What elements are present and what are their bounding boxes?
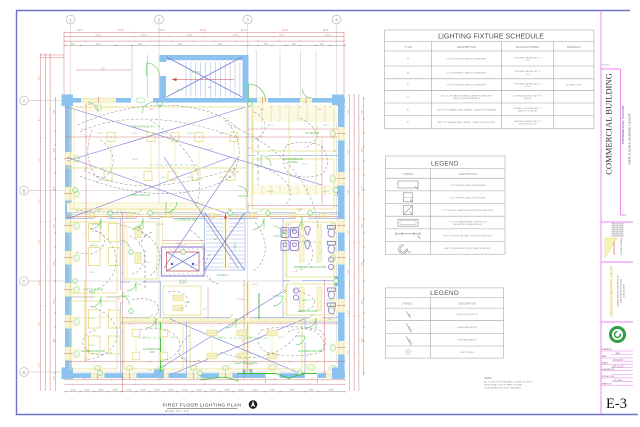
svg-text:5'-4": 5'-4" bbox=[292, 43, 296, 45]
svg-text:REMARKS: REMARKS bbox=[567, 45, 581, 49]
svg-text:GT8 E: GT8 E bbox=[525, 86, 531, 88]
svg-text:5'-4": 5'-4" bbox=[96, 43, 100, 45]
svg-text:2'-2": 2'-2" bbox=[328, 319, 332, 321]
svg-text:5'-2": 5'-2" bbox=[53, 148, 55, 152]
svg-text:LP 1-1: LP 1-1 bbox=[207, 149, 214, 151]
svg-text:LP-C: LP-C bbox=[110, 217, 115, 219]
svg-text:5'-10": 5'-10" bbox=[182, 390, 187, 392]
svg-text:100 BLACKSMITH ROAD SUITE 200: 100 BLACKSMITH ROAD SUITE 200 bbox=[617, 275, 620, 307]
svg-text:DATE:: DATE: bbox=[602, 355, 608, 358]
svg-text:12'-4": 12'-4" bbox=[241, 30, 247, 32]
svg-text:8'-6": 8'-6" bbox=[38, 363, 40, 368]
svg-text:ROOM: ROOM bbox=[289, 160, 299, 164]
svg-text:5'-10": 5'-10" bbox=[196, 390, 201, 392]
svg-text:4: 4 bbox=[335, 17, 338, 22]
svg-text:STAIR-2: STAIR-2 bbox=[217, 273, 228, 277]
svg-text:5'-4": 5'-4" bbox=[138, 43, 142, 45]
svg-text:20'-0": 20'-0" bbox=[187, 35, 193, 37]
svg-text:ESCENT W/ CONVERSION UNIT: ESCENT W/ CONVERSION UNIT bbox=[453, 224, 482, 226]
svg-text:12'-4": 12'-4" bbox=[200, 30, 206, 32]
svg-text:2 X 4' TROFFER 4-LAMP FLUORESC: 2 X 4' TROFFER 4-LAMP FLUORESCENT bbox=[447, 58, 487, 61]
svg-text:6'-4": 6'-4" bbox=[138, 284, 143, 286]
svg-text:20'-0": 20'-0" bbox=[233, 35, 239, 37]
svg-text:LP-C: LP-C bbox=[240, 217, 245, 219]
svg-text:EX-1: EX-1 bbox=[150, 109, 154, 111]
svg-text:5'-6": 5'-6" bbox=[362, 262, 364, 266]
svg-text:12'-4": 12'-4" bbox=[118, 30, 124, 32]
svg-text:20'-0": 20'-0" bbox=[325, 35, 331, 37]
svg-text:DESIGN ENGINEERING GROUP: DESIGN ENGINEERING GROUP bbox=[609, 265, 613, 317]
svg-text:LP-2-7: LP-2-7 bbox=[326, 241, 331, 243]
svg-text:TAND CONVERSION UNIT 8: TAND CONVERSION UNIT 8 bbox=[453, 97, 481, 100]
svg-text:5'-4": 5'-4" bbox=[71, 43, 75, 45]
svg-text:FOUR WAY SWITCH: FOUR WAY SWITCH bbox=[458, 339, 478, 342]
svg-text:ST-1: ST-1 bbox=[208, 87, 213, 89]
svg-text:LEGEND: LEGEND bbox=[430, 290, 459, 297]
svg-text:CLASSROOM 108: CLASSROOM 108 bbox=[298, 349, 322, 353]
svg-text:LP 1-4: LP 1-4 bbox=[157, 224, 164, 226]
svg-text:12'-4": 12'-4" bbox=[77, 30, 83, 32]
svg-text:COMMERCIAL BUILDING: COMMERCIAL BUILDING bbox=[604, 73, 614, 175]
svg-text:STAIR-1: STAIR-1 bbox=[234, 241, 237, 250]
svg-text:SINGLE POLE SWITCH: SINGLE POLE SWITCH bbox=[456, 314, 478, 316]
svg-text:4 FT. 2' HO HANGING WAY 4 LAMP: 4 FT. 2' HO HANGING WAY 4 LAMP FLUOR bbox=[449, 220, 487, 223]
svg-text:LP-2-1: LP-2-1 bbox=[267, 125, 272, 127]
svg-text:DESCRIPTION: DESCRIPTION bbox=[458, 301, 476, 305]
svg-text:(508) 366-0000: (508) 366-0000 bbox=[624, 285, 626, 298]
svg-text:PROJECT NO:: PROJECT NO: bbox=[602, 376, 615, 378]
svg-text:OPEN OFFICE LP-1: OPEN OFFICE LP-1 bbox=[131, 125, 155, 129]
svg-text:12'-4": 12'-4" bbox=[323, 30, 329, 32]
svg-text:BEST 1/2" SHADED WALL VALNET 1: BEST 1/2" SHADED WALL VALNET 1-LAMP FLUO… bbox=[438, 121, 496, 124]
svg-text:R1: R1 bbox=[73, 217, 75, 219]
svg-text:3: 3 bbox=[246, 17, 249, 22]
svg-text:4 FT. 2 L-HO' HANG ING WAY 4-L: 4 FT. 2 L-HO' HANG ING WAY 4-LAMP FLUORE… bbox=[440, 94, 493, 97]
svg-text:5'-2": 5'-2" bbox=[53, 110, 55, 114]
svg-text:AUTODESK: AUTODESK bbox=[613, 241, 616, 255]
svg-text:THREE WAY SWITCH: THREE WAY SWITCH bbox=[457, 326, 478, 329]
svg-text:LP-2-11: LP-2-11 bbox=[184, 302, 190, 304]
svg-text:3'-8": 3'-8" bbox=[203, 309, 207, 311]
svg-text:LP-1-6: LP-1-6 bbox=[219, 177, 224, 179]
svg-text:LP-1-9: LP-1-9 bbox=[177, 90, 184, 92]
svg-text:2 X 4' TROFFER 4-LAMP FLUORESC: 2 X 4' TROFFER 4-LAMP FLUORESCENT bbox=[450, 184, 487, 187]
svg-text:WOMEN'S REST ROOM: WOMEN'S REST ROOM bbox=[294, 265, 327, 269]
svg-text:STUDENT VERSION: STUDENT VERSION bbox=[621, 237, 623, 255]
svg-text:8'-6": 8'-6" bbox=[38, 281, 40, 286]
svg-text:12'-4": 12'-4" bbox=[282, 30, 288, 32]
svg-text:5'-10": 5'-10" bbox=[210, 390, 215, 392]
svg-text:LP-3-5: LP-3-5 bbox=[218, 337, 223, 339]
svg-text:LP-C: LP-C bbox=[160, 217, 165, 219]
svg-text:5'-10": 5'-10" bbox=[140, 390, 145, 392]
svg-text:20'-0": 20'-0" bbox=[279, 35, 285, 37]
svg-text:6'-0": 6'-0" bbox=[116, 299, 120, 301]
svg-text:5'-10": 5'-10" bbox=[328, 390, 333, 392]
svg-text:W/ NIGHT LIGHT: W/ NIGHT LIGHT bbox=[566, 85, 582, 87]
svg-text:2 X 4' TROFFER 4-LAMP FLUORESC: 2 X 4' TROFFER 4-LAMP FLUORESCENT bbox=[447, 84, 487, 87]
svg-text:1/4" = 1'-0": 1/4" = 1'-0" bbox=[612, 365, 624, 368]
svg-text:LIANTOS 12 CW RKT: LIANTOS 12 CW RKT bbox=[518, 110, 539, 113]
svg-text:BWT: BWT bbox=[616, 353, 621, 355]
svg-text:9'-0": 9'-0" bbox=[347, 190, 349, 195]
svg-text:5'-10": 5'-10" bbox=[224, 390, 229, 392]
svg-text:9'-0": 9'-0" bbox=[347, 150, 349, 155]
svg-text:BEST 1/2" EMERGENCY LIGHT 1-LA: BEST 1/2" EMERGENCY LIGHT 1-LAMP W/ BATT… bbox=[444, 247, 491, 250]
svg-text:12'-4": 12'-4" bbox=[159, 30, 165, 32]
svg-text:INGLE PRG 12 2 W: INGLE PRG 12 2 W bbox=[519, 123, 537, 125]
svg-text:LP-2-9: LP-2-9 bbox=[302, 300, 307, 302]
svg-text:12'-0": 12'-0" bbox=[180, 245, 186, 247]
svg-text:E-3: E-3 bbox=[606, 396, 627, 412]
svg-text:JUNCTION BOX: JUNCTION BOX bbox=[460, 352, 476, 354]
svg-text:LP-1-1: LP-1-1 bbox=[132, 133, 137, 135]
svg-text:LP-1-2: LP-1-2 bbox=[132, 177, 137, 179]
svg-text:ELEV: ELEV bbox=[179, 281, 186, 285]
svg-text:5'-10": 5'-10" bbox=[126, 390, 131, 392]
svg-text:LP-3-1: LP-3-1 bbox=[89, 318, 94, 320]
svg-text:LIGHTING FIXTURE SCHEDULE: LIGHTING FIXTURE SCHEDULE bbox=[438, 34, 544, 41]
svg-text:LP-2-3: LP-2-3 bbox=[267, 191, 272, 193]
svg-text:5'-2": 5'-2" bbox=[53, 224, 55, 228]
svg-text:LP-2-3: LP-2-3 bbox=[323, 191, 328, 193]
svg-text:5'-10": 5'-10" bbox=[252, 390, 257, 392]
svg-text:DESCRIPTION: DESCRIPTION bbox=[457, 45, 476, 49]
svg-text:LP-2-9: LP-2-9 bbox=[326, 300, 331, 302]
svg-text:5'-10": 5'-10" bbox=[269, 390, 274, 392]
svg-text:20'-0": 20'-0" bbox=[95, 35, 101, 37]
svg-text:5'-10": 5'-10" bbox=[84, 390, 89, 392]
svg-text:WESTBOROUGH, MA 0158: WESTBOROUGH, MA 0158 bbox=[620, 279, 623, 303]
svg-text:LP-1-4: LP-1-4 bbox=[187, 177, 192, 179]
svg-text:5'-2": 5'-2" bbox=[53, 262, 55, 266]
svg-text:5'-4": 5'-4" bbox=[320, 43, 324, 45]
svg-text:4'-2": 4'-2" bbox=[238, 224, 242, 226]
svg-text:LITHONIA LIGHTING CAT. # 2: LITHONIA LIGHTING CAT. # 2 bbox=[514, 82, 542, 85]
svg-text:NOTE:: NOTE: bbox=[484, 376, 492, 380]
svg-text:5'-10": 5'-10" bbox=[70, 390, 75, 392]
svg-text:LP-1-5: LP-1-5 bbox=[219, 133, 224, 135]
svg-text:LECTURE ROOM: LECTURE ROOM bbox=[234, 361, 258, 365]
svg-text:104: 104 bbox=[91, 291, 96, 295]
svg-text:A: A bbox=[407, 57, 409, 61]
svg-text:UP 17 R: UP 17 R bbox=[192, 71, 201, 74]
svg-text:9'-0": 9'-0" bbox=[347, 310, 349, 315]
svg-text:DESCRIPTION: DESCRIPTION bbox=[459, 172, 477, 176]
svg-text:8'-6": 8'-6" bbox=[38, 117, 40, 122]
svg-text:LITHONIA LIGHTING CAT. # W: LITHONIA LIGHTING CAT. # W bbox=[514, 94, 542, 97]
svg-text:SCALE:: SCALE: bbox=[602, 361, 609, 364]
svg-text:5'-4": 5'-4" bbox=[264, 43, 268, 45]
svg-text:6'-8": 6'-8" bbox=[83, 378, 87, 380]
svg-text:CORRIDOR 100: CORRIDOR 100 bbox=[175, 218, 197, 222]
svg-text:PROJECT:: PROJECT: bbox=[602, 65, 611, 67]
svg-text:LP-1-1: LP-1-1 bbox=[97, 133, 102, 135]
svg-text:STORAGE: STORAGE bbox=[305, 131, 319, 135]
svg-text:LP-2-5: LP-2-5 bbox=[89, 245, 94, 247]
svg-text:5'-2": 5'-2" bbox=[53, 186, 55, 190]
svg-text:5'-6": 5'-6" bbox=[362, 148, 364, 152]
svg-text:10-05-2013: 10-05-2013 bbox=[613, 360, 624, 362]
svg-text:ELEV: ELEV bbox=[176, 243, 182, 245]
svg-text:DRAWN BY:: DRAWN BY: bbox=[602, 348, 613, 351]
svg-text:2 X 2' TROFFER 2-LAMP FLUORESC: 2 X 2' TROFFER 2-LAMP FLUORESCENT bbox=[447, 71, 487, 74]
svg-text:MANUFACTURER: MANUFACTURER bbox=[516, 45, 539, 49]
svg-text:8'-6": 8'-6" bbox=[38, 322, 40, 327]
svg-text:OPEN OFFICE: OPEN OFFICE bbox=[130, 193, 150, 197]
svg-text:LP 2-2: LP 2-2 bbox=[252, 284, 259, 286]
svg-text:CHECKED BY:: CHECKED BY: bbox=[602, 369, 615, 371]
svg-text:WITH OSHA CODE 29 PART 97 THAN: WITH OSHA CODE 29 PART 97 THAN bbox=[484, 384, 522, 387]
svg-text:LITHONIA LIGHTING CAT. # 2: LITHONIA LIGHTING CAT. # 2 bbox=[514, 56, 542, 59]
svg-text:2: 2 bbox=[158, 17, 161, 22]
svg-text:5'-10": 5'-10" bbox=[98, 390, 103, 392]
svg-text:5'-0": 5'-0" bbox=[148, 370, 152, 372]
svg-text:LP-2-7: LP-2-7 bbox=[302, 241, 307, 243]
svg-text:TYPE: TYPE bbox=[404, 45, 411, 49]
svg-text:CONVERSATIONS WITH TEACHING: CONVERSATIONS WITH TEACHING bbox=[484, 387, 521, 390]
svg-text:12'-8": 12'-8" bbox=[88, 104, 93, 106]
svg-text:MEN'S ROOM: MEN'S ROOM bbox=[299, 309, 318, 313]
svg-text:LP-2-1: LP-2-1 bbox=[323, 125, 328, 127]
svg-text:B: B bbox=[407, 70, 409, 74]
svg-text:9'-2": 9'-2" bbox=[248, 148, 252, 150]
svg-text:10'-0": 10'-0" bbox=[132, 159, 138, 161]
svg-text:6'-8": 6'-8" bbox=[235, 378, 239, 380]
svg-text:File: 2013: File: 2013 bbox=[614, 380, 624, 382]
svg-text:B: B bbox=[22, 188, 25, 193]
svg-text:FIRST FLOOR & LIGHTING LAYOUT: FIRST FLOOR & LIGHTING LAYOUT bbox=[627, 113, 631, 164]
svg-text:8'-6": 8'-6" bbox=[38, 199, 40, 204]
svg-text:EX-1: EX-1 bbox=[260, 109, 264, 111]
svg-text:4HO BN: 4HO BN bbox=[524, 98, 532, 100]
svg-text:FIRST FLOOR LIGHTING PLAN: FIRST FLOOR LIGHTING PLAN bbox=[163, 402, 242, 408]
svg-text:5'-4": 5'-4" bbox=[178, 43, 182, 45]
svg-text:LP-2-5: LP-2-5 bbox=[89, 272, 94, 274]
svg-text:LP-3-3: LP-3-3 bbox=[142, 337, 147, 339]
svg-text:106: 106 bbox=[150, 350, 155, 354]
svg-text:5'-0": 5'-0" bbox=[248, 370, 252, 372]
svg-text:LP-1-3: LP-1-3 bbox=[187, 133, 192, 135]
svg-text:C: C bbox=[407, 83, 409, 87]
svg-text:9'-0": 9'-0" bbox=[347, 270, 349, 275]
svg-text:48 FT' 8 X 8' VERTICAL WALL SC: 48 FT' 8 X 8' VERTICAL WALL SCONCE FLUOR… bbox=[443, 235, 493, 238]
svg-text:20'-0": 20'-0" bbox=[141, 35, 147, 37]
svg-text:8'-6": 8'-6" bbox=[38, 76, 40, 81]
svg-text:9'-0": 9'-0" bbox=[347, 230, 349, 235]
svg-text:48 FT' 8 X 8' SHADED WALL VALN: 48 FT' 8 X 8' SHADED WALL VALNET 1-LAMP … bbox=[437, 108, 497, 111]
svg-text:SYMBOL: SYMBOL bbox=[403, 172, 414, 176]
svg-text:LP-C: LP-C bbox=[300, 217, 305, 219]
svg-text:5'-6": 5'-6" bbox=[362, 224, 364, 228]
svg-text:8'-0": 8'-0" bbox=[101, 68, 105, 70]
svg-text:5'-10": 5'-10" bbox=[154, 390, 159, 392]
svg-text:5'-10": 5'-10" bbox=[289, 390, 294, 392]
svg-text:5'-2": 5'-2" bbox=[53, 376, 55, 380]
svg-text:LP 1-8: LP 1-8 bbox=[237, 299, 244, 301]
svg-text:5'-6": 5'-6" bbox=[362, 300, 364, 304]
svg-text:LP-3-5: LP-3-5 bbox=[278, 337, 283, 339]
svg-text:ALL LIGHT SWITCHES ARE LOCATED: ALL LIGHT SWITCHES ARE LOCATED 48" A.F.F… bbox=[484, 381, 533, 384]
svg-text:D: D bbox=[407, 95, 409, 99]
svg-text:LITHONIA LIGHTING CAT. # 2: LITHONIA LIGHTING CAT. # 2 bbox=[514, 70, 542, 73]
svg-text:SYMBOL: SYMBOL bbox=[402, 301, 413, 305]
svg-text:5'-10": 5'-10" bbox=[112, 390, 117, 392]
svg-text:LEGEND: LEGEND bbox=[431, 160, 459, 167]
svg-text:LP-3-1: LP-3-1 bbox=[89, 345, 94, 347]
svg-text:GW MATIC LIGHTING CAT. # P: GW MATIC LIGHTING CAT. # P bbox=[513, 107, 542, 110]
svg-text:8'-6": 8'-6" bbox=[38, 240, 40, 245]
svg-text:5'-2": 5'-2" bbox=[53, 300, 55, 304]
svg-text:8'-2": 8'-2" bbox=[288, 224, 293, 226]
svg-text:E: E bbox=[407, 107, 409, 111]
svg-text:LP-1-2: LP-1-2 bbox=[97, 177, 102, 179]
svg-text:5'-6": 5'-6" bbox=[362, 110, 364, 114]
svg-text:LP-1-4: LP-1-4 bbox=[161, 177, 166, 179]
svg-text:8'-6": 8'-6" bbox=[38, 158, 40, 163]
svg-text:9'-0": 9'-0" bbox=[347, 350, 349, 355]
svg-text:5'-6": 5'-6" bbox=[362, 186, 364, 190]
svg-text:5'-10": 5'-10" bbox=[168, 390, 173, 392]
svg-text:MASTER LIGHTING CAT. # S: MASTER LIGHTING CAT. # S bbox=[514, 120, 541, 123]
svg-text:7'-8": 7'-8" bbox=[303, 164, 308, 166]
svg-text:LP-3-3: LP-3-3 bbox=[170, 337, 175, 339]
svg-text:LP-3-5: LP-3-5 bbox=[248, 337, 253, 339]
svg-text:SHEET NO:: SHEET NO: bbox=[602, 383, 613, 385]
svg-text:1: 1 bbox=[69, 17, 72, 22]
svg-text:SCALE: 1/4" = 1'-0": SCALE: 1/4" = 1'-0" bbox=[165, 409, 189, 413]
svg-text:UP: UP bbox=[213, 238, 217, 241]
svg-text:5'-10": 5'-10" bbox=[308, 390, 313, 392]
svg-text:2 X 2' TROFFER 2-LAMP FLUORESC: 2 X 2' TROFFER 2-LAMP FLUORESCENT W/ NIG… bbox=[442, 209, 494, 212]
svg-text:LP-1-3: LP-1-3 bbox=[161, 133, 166, 135]
svg-text:9'-0": 9'-0" bbox=[347, 110, 349, 115]
svg-text:5'-6": 5'-6" bbox=[362, 338, 364, 342]
svg-text:5'-4": 5'-4" bbox=[218, 43, 222, 45]
svg-text:2 X 2' TROFFER 2-LAMP FLUORESC: 2 X 2' TROFFER 2-LAMP FLUORESCENT bbox=[450, 197, 487, 200]
svg-text:5'-10": 5'-10" bbox=[238, 390, 243, 392]
svg-text:LP 3-4: LP 3-4 bbox=[181, 358, 188, 360]
svg-text:5'-2": 5'-2" bbox=[53, 338, 55, 342]
